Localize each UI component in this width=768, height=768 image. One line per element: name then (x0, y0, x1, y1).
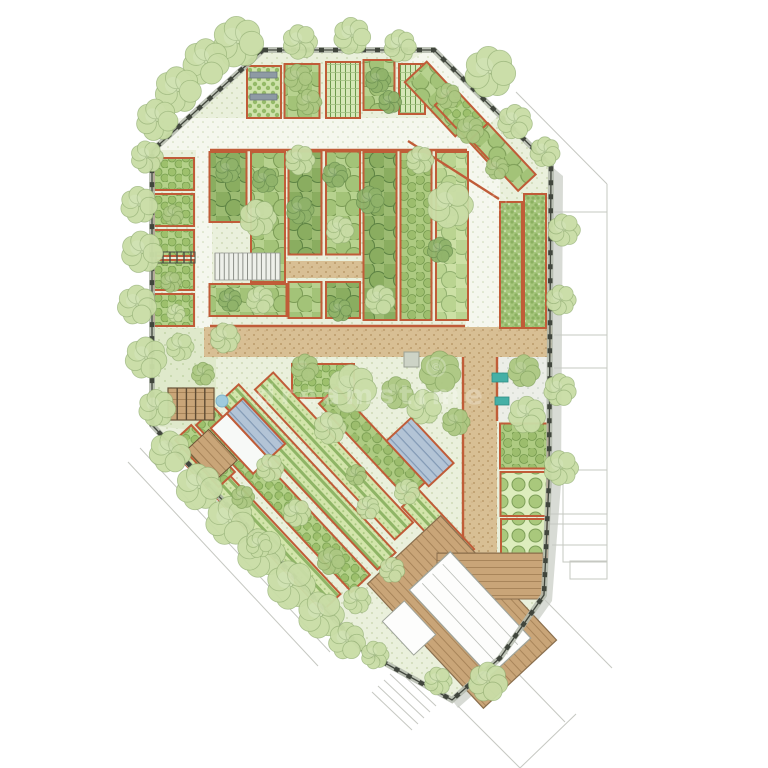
tree-canopy (425, 667, 452, 695)
cold-frame (250, 72, 277, 78)
garden-stairs (215, 253, 280, 280)
neighbor-boundary-line (545, 600, 612, 668)
lawn-deck (168, 388, 214, 420)
watermark-copyright-icon: © (431, 361, 442, 374)
tree-canopy (297, 89, 322, 114)
tree-canopy (257, 454, 284, 482)
stock-image-canvas: © dreamstime (0, 0, 768, 768)
tree-canopy (191, 362, 214, 385)
tree-canopy (356, 496, 379, 519)
orchard-col-6 (401, 152, 432, 320)
bench (495, 397, 509, 405)
tree-canopy (407, 146, 434, 174)
tree-canopy (394, 479, 419, 504)
site-plan-drawing: © dreamstime (0, 0, 768, 768)
neighbor-footprint (563, 470, 607, 562)
tree-canopy (211, 323, 241, 353)
tree-canopy (284, 499, 311, 527)
tree-canopy (443, 408, 470, 436)
tree-canopy (167, 333, 194, 361)
tree-canopy (427, 237, 452, 262)
tree-canopy (329, 622, 366, 659)
east-orchard-1 (500, 202, 522, 328)
tree-canopy (218, 288, 241, 311)
tree-canopy (216, 157, 241, 182)
tree-canopy (149, 431, 191, 472)
bench (492, 373, 508, 382)
watermark-text: dreamstime (256, 380, 488, 411)
tree-canopy (131, 141, 163, 173)
tree-canopy (322, 162, 347, 187)
east-bed-2 (501, 472, 548, 516)
tree-canopy (547, 285, 577, 315)
cold-frame (250, 94, 277, 100)
tree-canopy (232, 485, 255, 508)
tree-canopy (286, 145, 316, 175)
neighbor-footprint (570, 561, 607, 579)
neighbor-boundary-line (520, 714, 576, 768)
tree-canopy (121, 186, 158, 223)
tree-canopy (139, 389, 176, 426)
bed-top-trellis (326, 62, 360, 118)
exterior-stair-line (384, 680, 424, 718)
exterior-stair-line (378, 686, 418, 724)
tree-canopy (366, 67, 391, 92)
pond (216, 395, 228, 407)
tree-canopy (167, 304, 185, 322)
tree-canopy (548, 214, 580, 246)
orchard-col-3b (289, 282, 322, 318)
tree-canopy (379, 90, 402, 113)
tree-canopy (362, 641, 389, 669)
tree-canopy (161, 272, 182, 293)
tree-canopy (137, 99, 178, 140)
east-bed-3 (501, 519, 547, 557)
tree-canopy (163, 204, 184, 225)
tree-canopy (485, 156, 508, 179)
tree-canopy (122, 231, 163, 272)
east-orchard-2 (524, 194, 546, 328)
tree-canopy (346, 464, 367, 485)
tree-canopy (344, 586, 371, 614)
tree-canopy (287, 196, 314, 224)
main-east-west-path (204, 327, 552, 357)
tree-canopy (314, 412, 346, 444)
neighbor-boundary-line (458, 706, 520, 768)
exterior-stair-line (372, 692, 412, 730)
tree-canopy (379, 557, 404, 582)
cross-path (283, 261, 363, 278)
shed (404, 352, 419, 367)
